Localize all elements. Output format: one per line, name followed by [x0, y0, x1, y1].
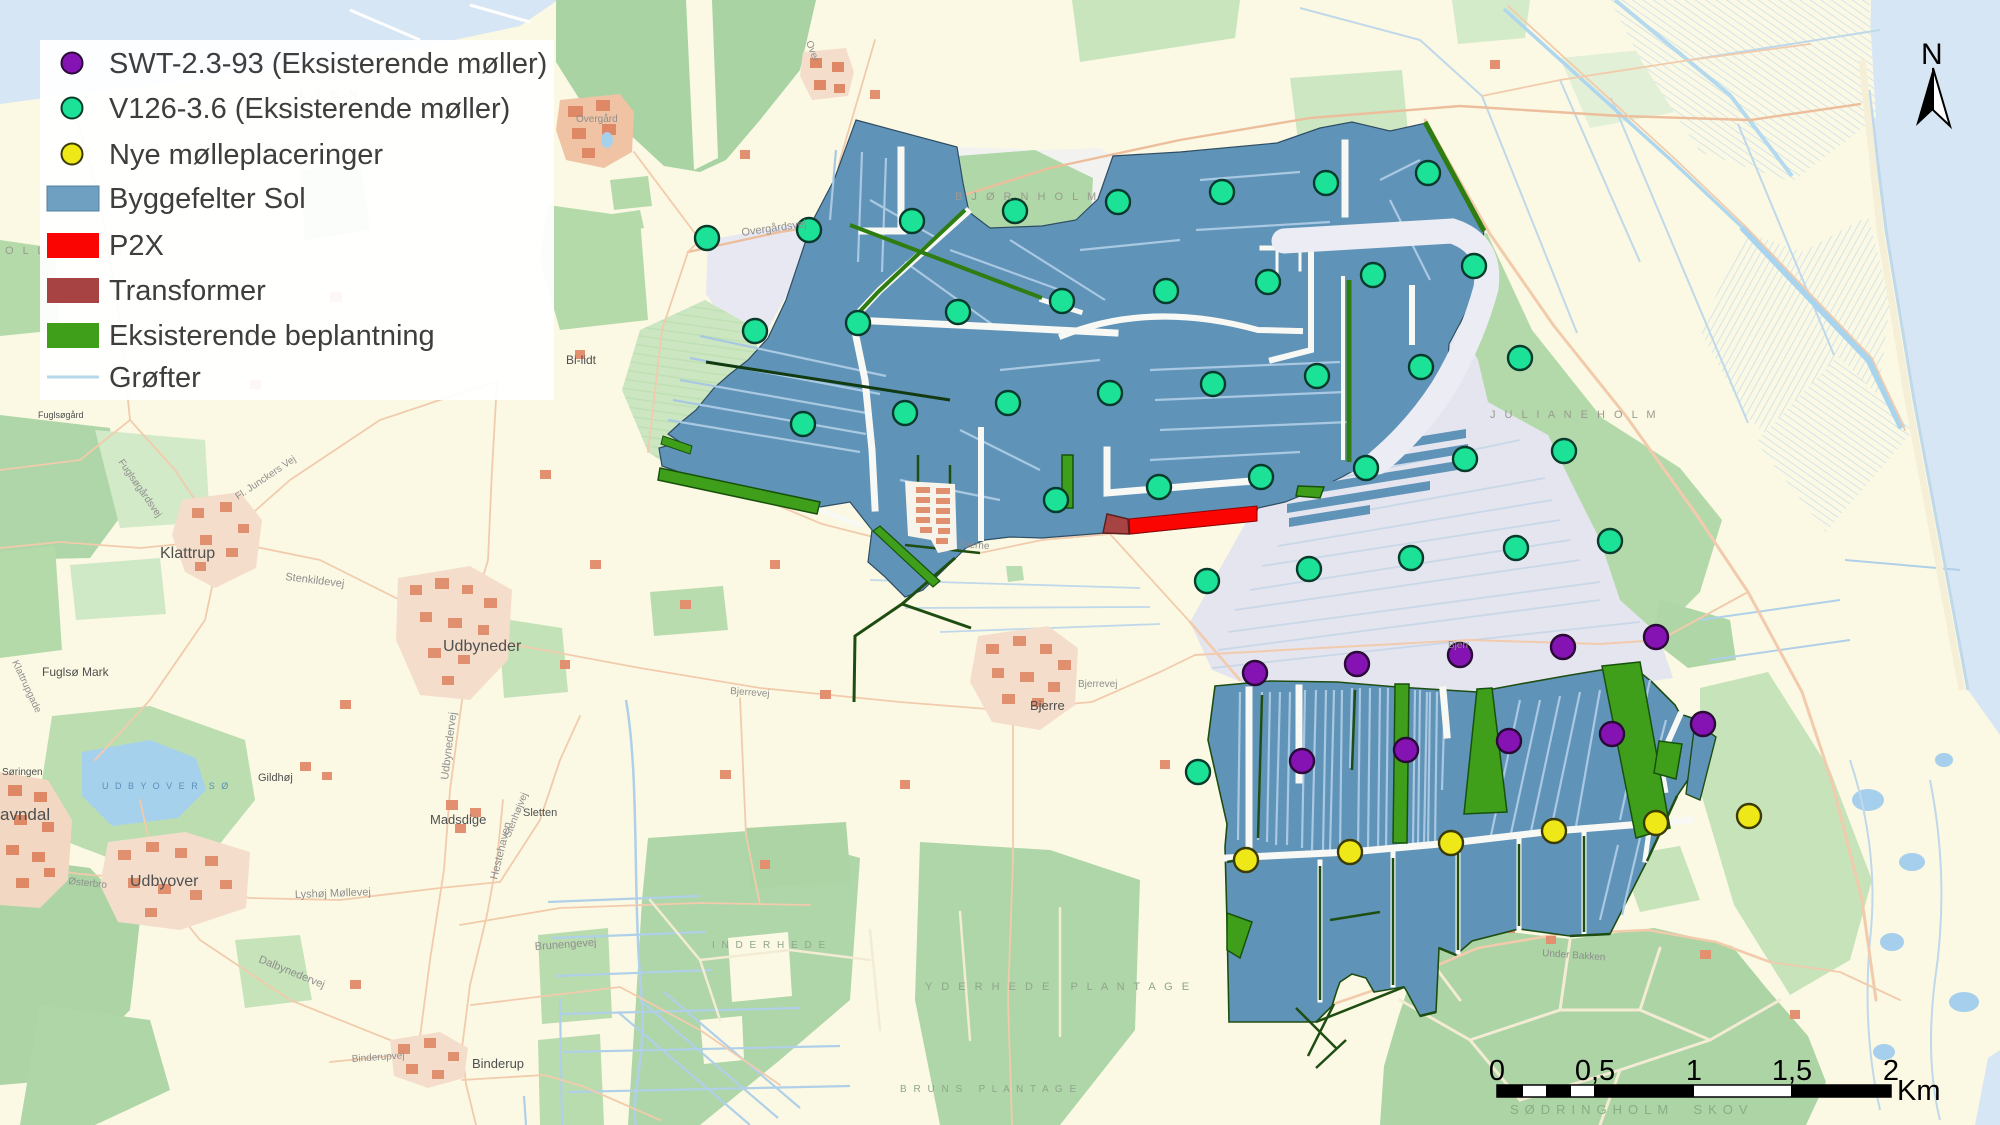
svg-text:1: 1 — [1686, 1055, 1702, 1087]
svg-text:B J Ø R N H O L M: B J Ø R N H O L M — [955, 191, 1099, 203]
svg-text:0,5: 0,5 — [1575, 1055, 1615, 1087]
svg-text:SWT-2.3-93 (Eksisterende mølle: SWT-2.3-93 (Eksisterende møller) — [109, 48, 547, 80]
svg-text:Bjerr: Bjerr — [1448, 640, 1470, 651]
svg-text:Tuerne: Tuerne — [958, 539, 990, 552]
svg-text:V126-3.6 (Eksisterende møller): V126-3.6 (Eksisterende møller) — [109, 93, 510, 125]
svg-text:Bjerre: Bjerre — [1030, 698, 1065, 713]
svg-text:Eksisterende beplantning: Eksisterende beplantning — [109, 320, 435, 352]
svg-text:avndal: avndal — [0, 805, 50, 824]
svg-text:0: 0 — [1489, 1055, 1505, 1087]
svg-text:I N D E R H E D E: I N D E R H E D E — [712, 940, 827, 951]
svg-text:Grøfter: Grøfter — [109, 362, 201, 394]
svg-text:Overgård: Overgård — [576, 113, 618, 125]
svg-text:Bi-lidt: Bi-lidt — [566, 353, 597, 367]
svg-text:U D B Y O V E R S Ø: U D B Y O V E R S Ø — [102, 781, 230, 791]
svg-text:Fuglsøgård: Fuglsøgård — [38, 410, 84, 420]
svg-text:P2X: P2X — [109, 230, 164, 262]
svg-text:Nye mølleplaceringer: Nye mølleplaceringer — [109, 139, 383, 171]
svg-text:Udbyneder: Udbyneder — [443, 638, 522, 655]
svg-text:Madsdige: Madsdige — [430, 812, 486, 827]
svg-text:Fuglsø Mark: Fuglsø Mark — [42, 665, 110, 679]
svg-text:Gildhøj: Gildhøj — [258, 772, 293, 784]
svg-text:Sletten: Sletten — [523, 807, 557, 819]
svg-text:Søringen: Søringen — [2, 767, 43, 778]
svg-text:Binderup: Binderup — [472, 1056, 524, 1071]
svg-text:Klattrup: Klattrup — [160, 545, 215, 562]
svg-text:SØDRINGHOLM SKOV: SØDRINGHOLM SKOV — [1510, 1102, 1754, 1117]
svg-text:Km: Km — [1897, 1075, 1941, 1107]
svg-text:Y D E R H E D E P L A N T A: Y D E R H E D E P L A N T A G E — [925, 981, 1192, 993]
svg-text:1,5: 1,5 — [1772, 1055, 1812, 1087]
svg-text:Bjerrevej: Bjerrevej — [1078, 679, 1117, 690]
svg-text:Byggefelter Sol: Byggefelter Sol — [109, 183, 306, 215]
svg-text:Transformer: Transformer — [109, 275, 266, 307]
svg-text:J U L I A N E H O L M: J U L I A N E H O L M — [1490, 409, 1659, 421]
svg-text:B R U N S P L A N T A G E: B R U N S P L A N T A G E — [900, 1084, 1078, 1095]
svg-text:N: N — [1921, 38, 1943, 71]
svg-text:Udbyover: Udbyover — [130, 873, 199, 890]
